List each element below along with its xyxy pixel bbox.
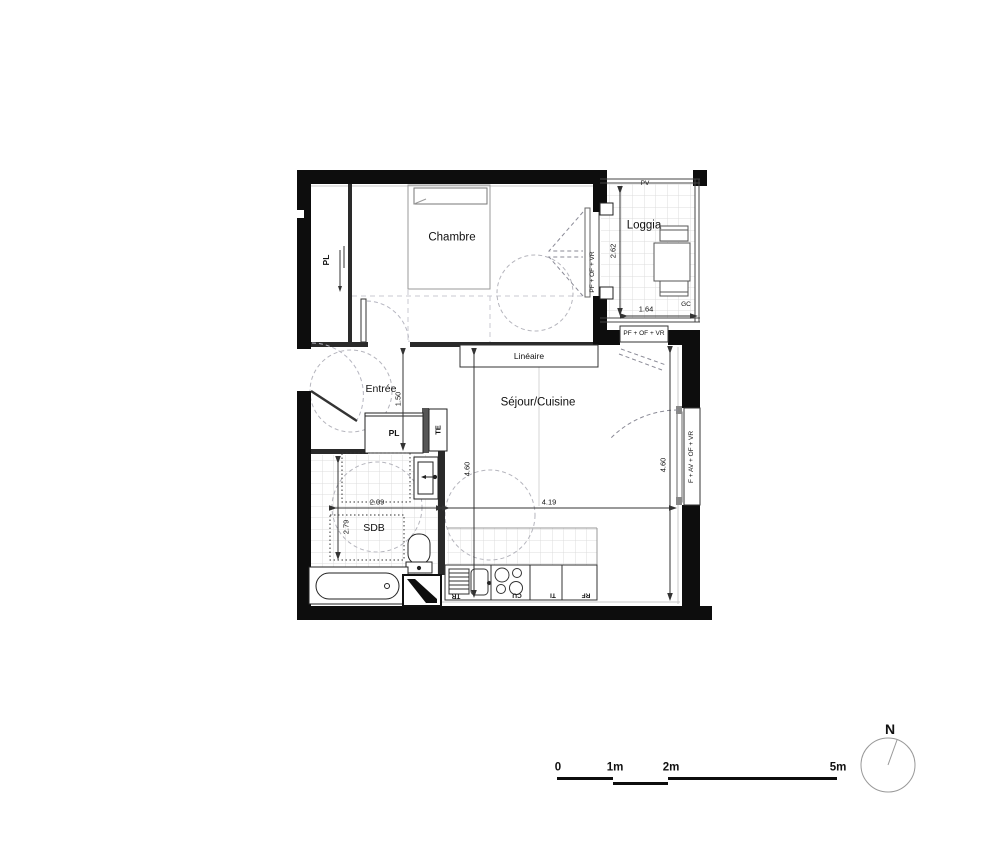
dim-sdb-depth: 2.79 bbox=[342, 520, 350, 535]
floorplan-drawing bbox=[0, 0, 1000, 857]
north-label: N bbox=[885, 722, 895, 736]
dim-facade-window: 4.60 bbox=[659, 458, 667, 473]
room-label-entree: Entrée bbox=[366, 384, 397, 395]
closet-label-pl-chambre: PL bbox=[322, 255, 331, 266]
dim-sejour-width: 4.19 bbox=[542, 498, 557, 506]
room-label-chambre: Chambre bbox=[428, 232, 475, 244]
kitchen-unit-label-ti: TI bbox=[550, 591, 556, 598]
toilet bbox=[406, 534, 432, 573]
electrical-panel-label-te: TE bbox=[434, 425, 442, 435]
scale-label-0: 0 bbox=[555, 762, 561, 774]
dim-sdb-width: 2.09 bbox=[370, 498, 385, 506]
scale-label-5m: 5m bbox=[830, 762, 847, 774]
window-label-chambre-loggia: PF + OF + VR bbox=[590, 251, 597, 292]
washbasin bbox=[414, 457, 438, 499]
technical-shaft bbox=[403, 575, 441, 606]
floorplan-page: Chambre Loggia Entrée Séjour/Cuisine SDB… bbox=[0, 0, 1000, 857]
lineaire-label: Linéaire bbox=[514, 352, 544, 361]
scale-label-1m: 1m bbox=[607, 762, 624, 774]
dim-sejour-depth: 4.60 bbox=[463, 462, 471, 477]
kitchen-unit-label-rf: RF bbox=[582, 591, 591, 598]
dim-loggia-width: 1.64 bbox=[639, 305, 654, 313]
gc-label: GC bbox=[681, 302, 691, 309]
room-label-sdb: SDB bbox=[363, 523, 385, 534]
north-compass bbox=[861, 738, 915, 792]
scale-bar-segment-1 bbox=[557, 777, 613, 780]
window-label-facade: F + AV + OF + VR bbox=[689, 431, 696, 483]
window-label-loggia-sejour: PF + OF + VR bbox=[623, 331, 664, 338]
bathtub bbox=[309, 567, 408, 604]
room-label-loggia: Loggia bbox=[627, 220, 662, 232]
kitchen-unit-label-tr: TR bbox=[452, 592, 461, 599]
pv-label: PV bbox=[641, 181, 650, 188]
dim-entree-width: 1.50 bbox=[394, 392, 402, 407]
kitchen-unit-label-cu: CU bbox=[512, 591, 521, 598]
scale-bar-segment-3 bbox=[668, 777, 837, 780]
scale-label-2m: 2m bbox=[663, 762, 680, 774]
closet-label-pl-entree: PL bbox=[389, 429, 400, 438]
dim-loggia-depth: 2.62 bbox=[609, 244, 617, 259]
room-label-sejour-cuisine: Séjour/Cuisine bbox=[501, 397, 576, 409]
scale-bar-segment-2 bbox=[613, 782, 668, 785]
